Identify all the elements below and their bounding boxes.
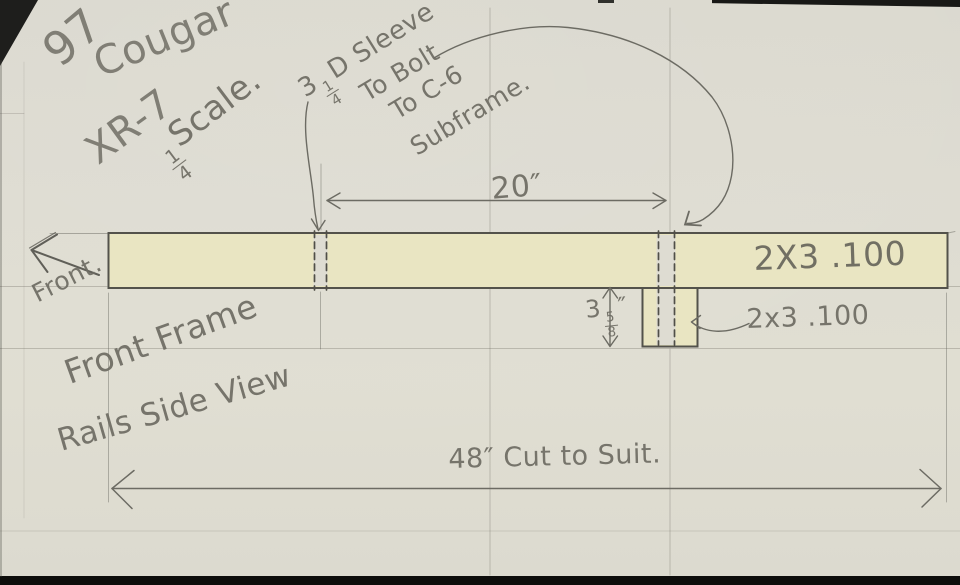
dim-48-lines [112, 470, 941, 509]
rail-section-label: 2X3 .100 [753, 237, 907, 277]
dim-drop-label: 358″ [584, 294, 631, 343]
leader-drop-curve [692, 322, 750, 331]
photo-edge-top-small [598, 0, 614, 3]
front-arrow-ghost-stroke [30, 233, 56, 249]
sleeve-gap-left [314, 235, 328, 286]
leader-left-sleeve-curve [306, 102, 318, 229]
leader-left-sleeve [306, 102, 325, 231]
photo-edge-left [0, 60, 2, 577]
drop-fraction: 58 [603, 311, 619, 341]
dim-20-label: 20″ [490, 170, 543, 206]
front-arrow-head [32, 235, 58, 273]
dim-48-arrow-left [112, 471, 134, 509]
drop-section-label: 2x3 .100 [746, 302, 870, 335]
construction-tick-beam-top-right [948, 232, 955, 234]
leader-drop-label [692, 316, 750, 332]
leader-left-sleeve-arrow [312, 219, 326, 231]
leader-arc-right-sleeve [434, 27, 733, 226]
dim-48-label: 48″ Cut to Suit. [448, 440, 661, 474]
photo-edge-bottom [0, 576, 960, 585]
scanned-drawing: 97 Cougar XR-7 14Scale. 314D Sleeve To B… [0, 0, 960, 585]
